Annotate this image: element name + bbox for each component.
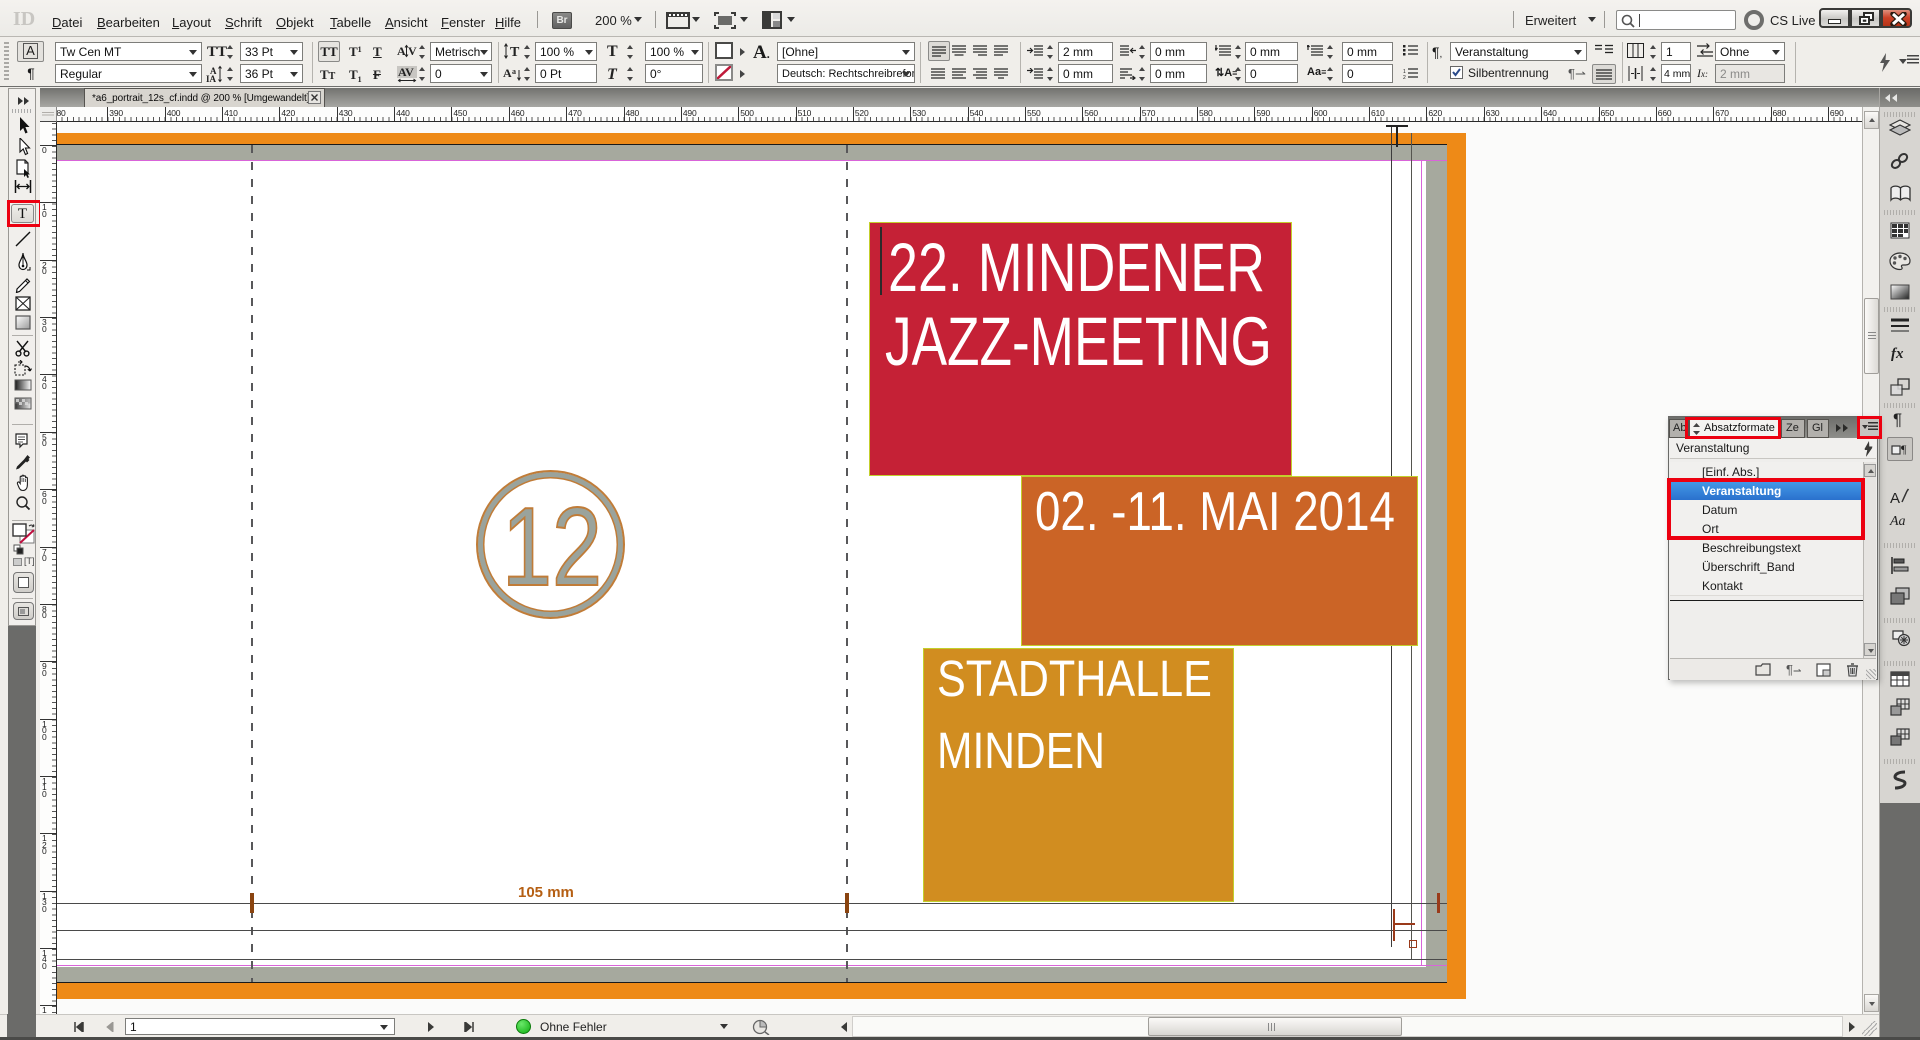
svg-text:¶: ¶ bbox=[1901, 442, 1907, 456]
svg-text:V: V bbox=[408, 44, 417, 58]
svg-text:a: a bbox=[512, 67, 516, 76]
svg-text:IA: IA bbox=[206, 74, 217, 83]
svg-text:AV: AV bbox=[398, 66, 414, 79]
svg-text:A: A bbox=[1890, 490, 1900, 507]
svg-text:A: A bbox=[503, 66, 512, 80]
svg-text:T: T bbox=[510, 45, 520, 59]
svg-text:2: 2 bbox=[1403, 75, 1406, 80]
svg-text:A: A bbox=[397, 44, 406, 58]
